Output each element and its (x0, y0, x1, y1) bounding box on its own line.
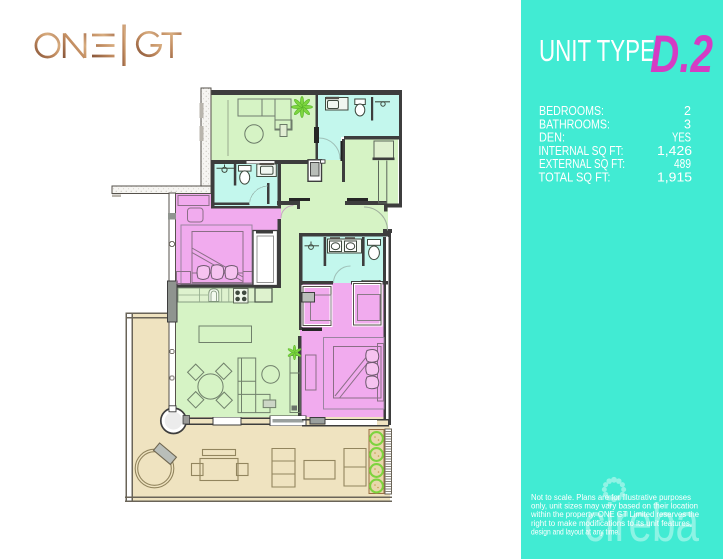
svg-text:1,915: 1,915 (657, 171, 692, 185)
svg-text:BATHROOMS:: BATHROOMS: (539, 117, 610, 131)
svg-text:TOTAL SQ FT:: TOTAL SQ FT: (539, 171, 611, 185)
svg-text:D.2: D.2 (650, 25, 713, 84)
svg-text:3: 3 (684, 117, 691, 131)
svg-text:INTERNAL SQ FT:: INTERNAL SQ FT: (539, 144, 624, 158)
svg-text:489: 489 (674, 157, 691, 171)
svg-text:DEN:: DEN: (539, 131, 565, 145)
svg-text:design and layout at any time.: design and layout at any time. (531, 527, 620, 536)
svg-text:UNIT TYPE: UNIT TYPE (539, 33, 655, 68)
svg-text:BEDROOMS:: BEDROOMS: (539, 104, 604, 118)
svg-text:2: 2 (684, 104, 691, 118)
svg-text:YES: YES (672, 131, 691, 145)
svg-text:EXTERNAL SQ FT:: EXTERNAL SQ FT: (539, 157, 625, 171)
svg-text:1,426: 1,426 (657, 144, 692, 158)
